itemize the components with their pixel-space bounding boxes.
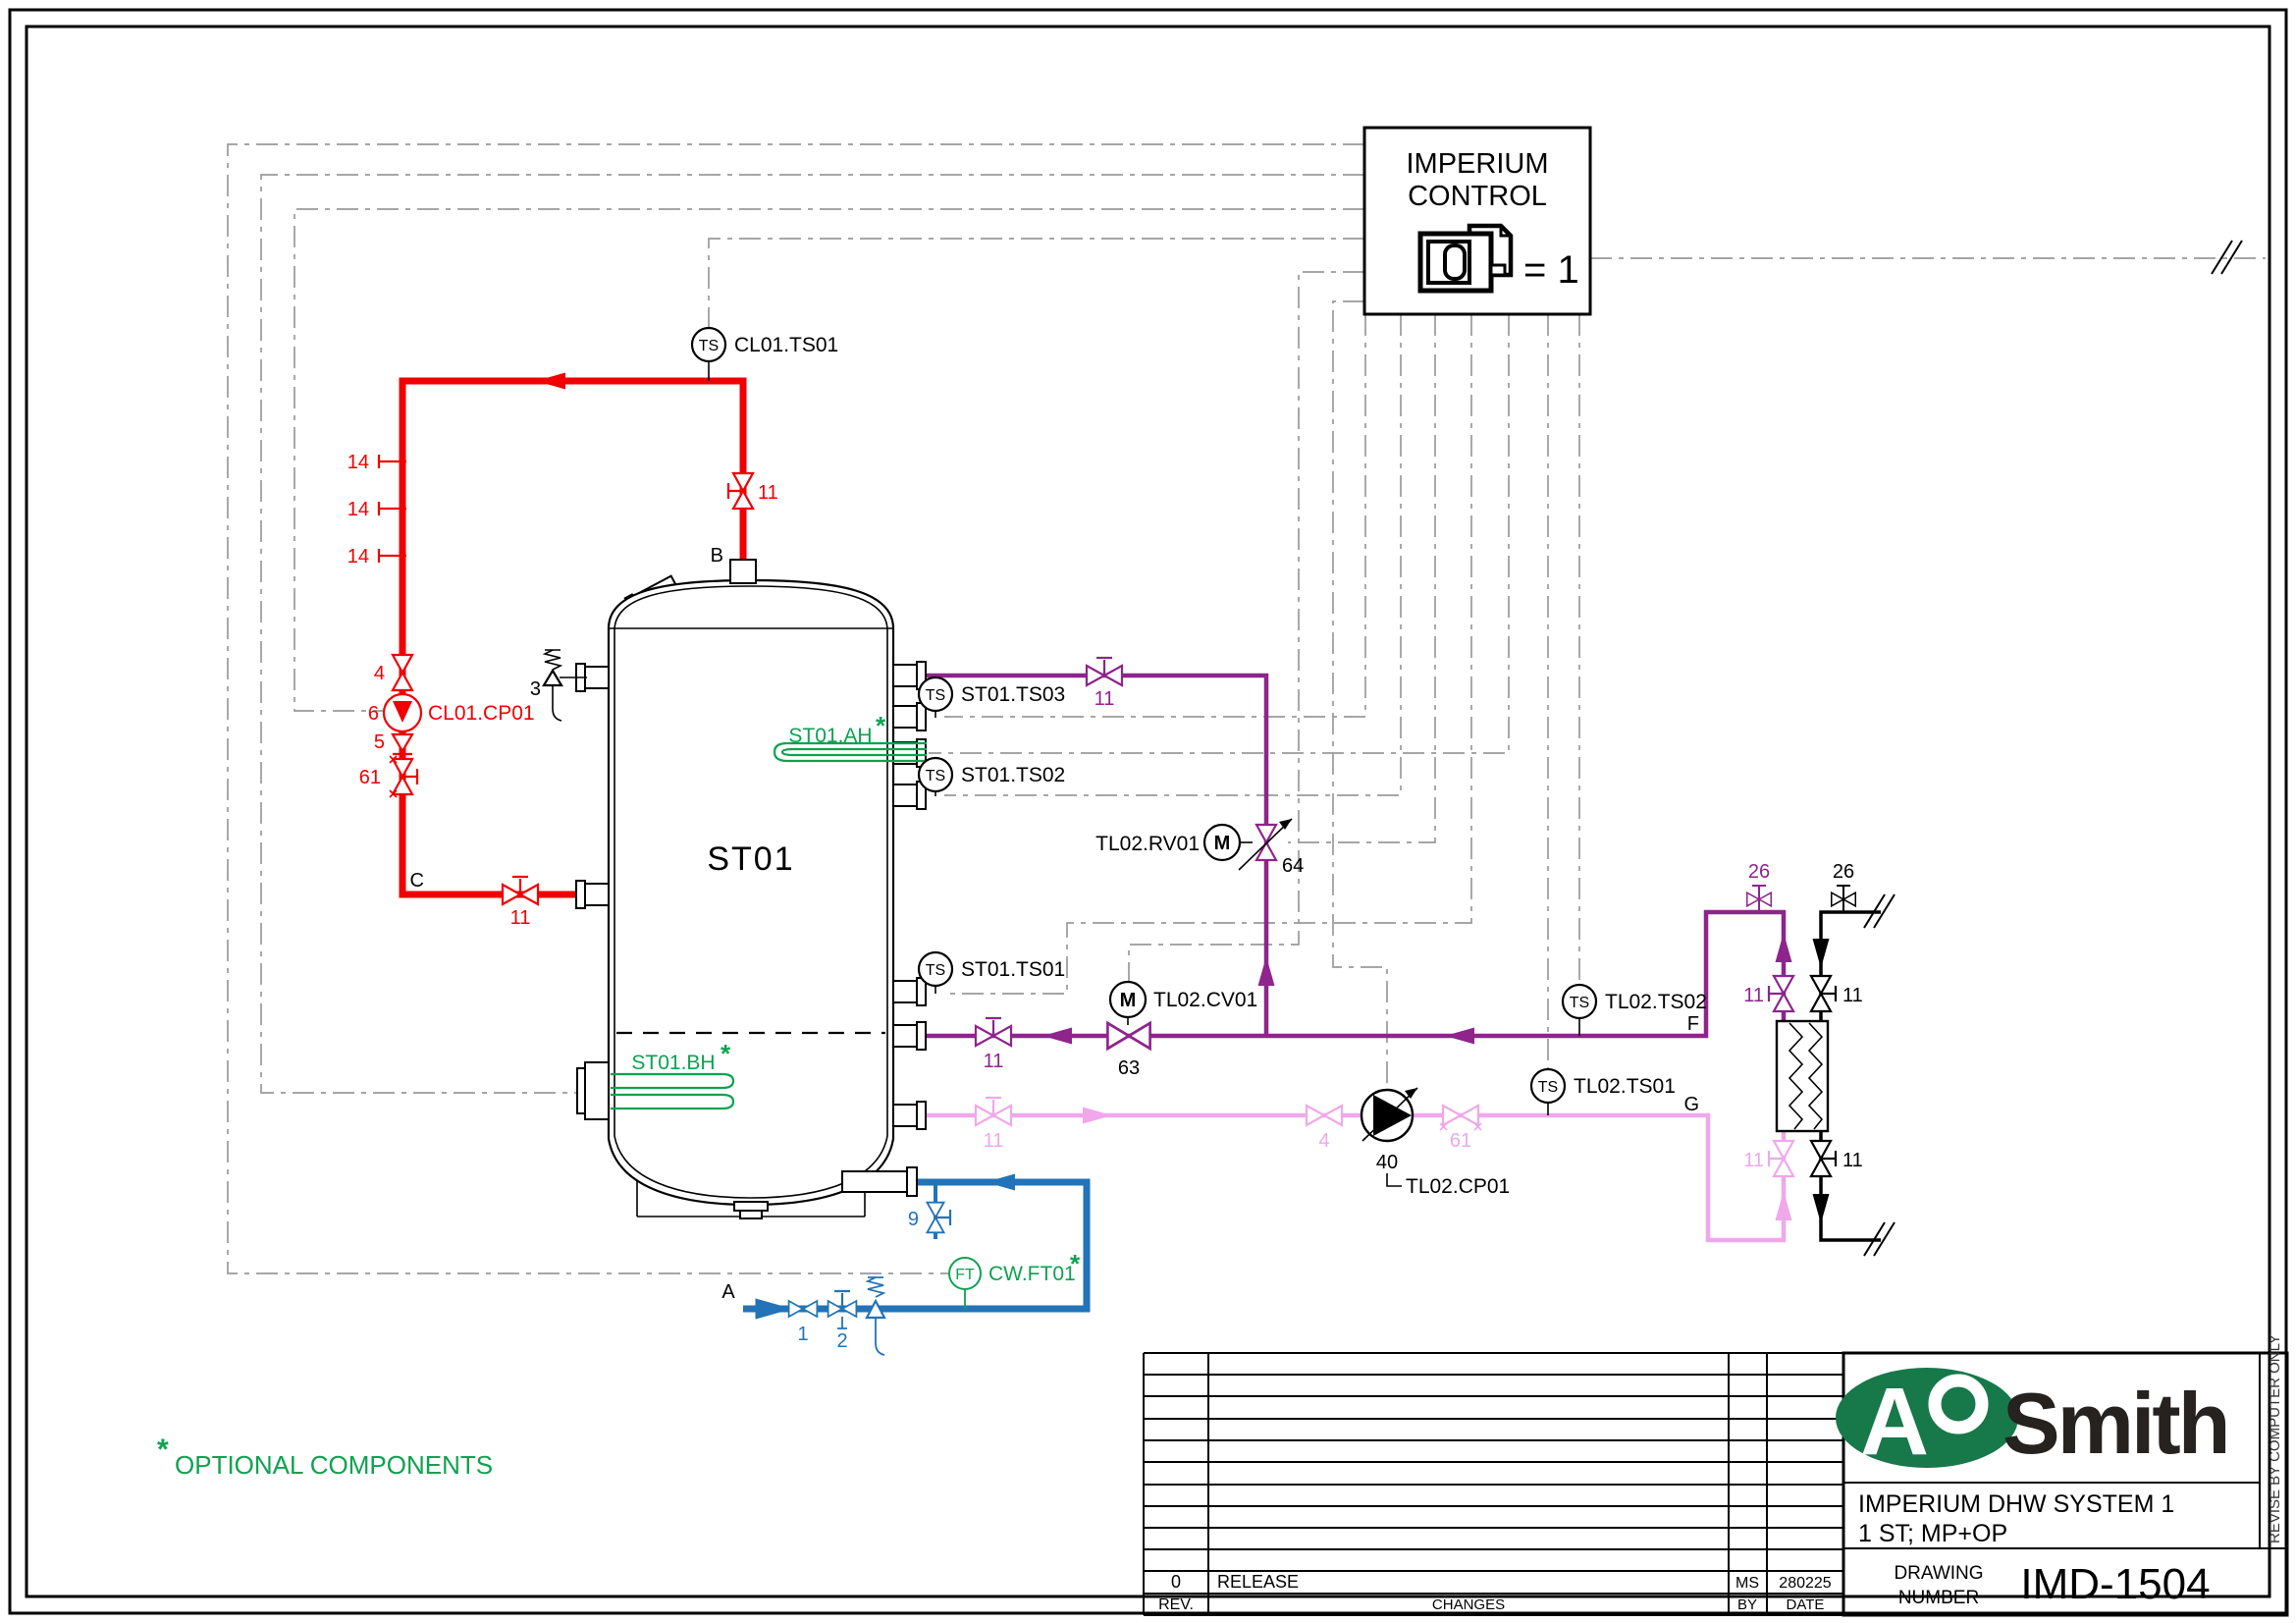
revision-header-by: BY [1737, 1596, 1757, 1613]
valve-11-purple-hx: 11 [1743, 976, 1793, 1011]
inner-border [27, 27, 2269, 1596]
flow-arrow-down [1813, 1194, 1830, 1223]
valve-label: 64 [1282, 855, 1304, 877]
drawing-number-value: IMD-1504 [2020, 1560, 2210, 1608]
check-valve-icon [393, 734, 412, 751]
revision-table: 0 RELEASE MS 280225 REV. CHANGES BY DATE [1144, 1353, 1843, 1615]
revision-header-rev: REV. [1158, 1596, 1194, 1613]
valve-label: 11 [758, 482, 778, 504]
actuator-tl02-cv01: M TL02.CV01 [1110, 982, 1257, 1017]
relief-valve-blue [867, 1277, 884, 1355]
tank-nozzle [893, 978, 926, 1005]
sensor-cl01-ts01: TS CL01.TS01 [692, 328, 838, 381]
tank-bottom-nozzle [740, 1211, 762, 1218]
pump-label: TL02.CP01 [1406, 1175, 1510, 1198]
flow-arrow-right [1083, 1108, 1112, 1124]
valve-label: 61 [1450, 1130, 1471, 1152]
drawing-number-label: DRAWING [1894, 1563, 1983, 1584]
valve-61-pink: 61 [1440, 1106, 1481, 1152]
sensor-label: CW.FT01 [988, 1263, 1076, 1285]
connection-c: C [410, 870, 424, 892]
sensor-cw-ft01: FT CW.FT01 * [949, 1249, 1081, 1309]
sensor-tl02-ts02: TS TL02.TS02 [1563, 985, 1707, 1036]
system-title-line1: IMPERIUM DHW SYSTEM 1 [1858, 1490, 2174, 1518]
tick-label: 14 [347, 499, 369, 520]
control-box-title: IMPERIUM [1407, 148, 1549, 180]
valve-label: 11 [1743, 1150, 1764, 1171]
actuator-tl02-rv01: M TL02.RV01 [1095, 825, 1253, 860]
sensor-label: ST01.TS02 [961, 764, 1065, 786]
valve-4-pink: 4 [1307, 1106, 1342, 1152]
system-title-line2: 1 ST; MP+OP [1858, 1520, 2007, 1547]
valve-26-purple-vent: 26 [1747, 861, 1771, 912]
pump-tl02-cp01: 40 TL02.CP01 [1362, 1088, 1510, 1198]
actuator-tag: M [1214, 833, 1231, 854]
connection-f: F [1687, 1013, 1699, 1035]
sensor-tag: TS [1538, 1079, 1558, 1096]
pid-drawing-page: ST01 ST01.AH * ST01.BH * 14 14 14 11 4 [0, 0, 2296, 1623]
tank-cold-inlet-flange [907, 1167, 917, 1196]
element-bh-optional-marker: * [721, 1039, 731, 1068]
piping-diagram: ST01 ST01.AH * ST01.BH * 14 14 14 11 4 [0, 0, 2296, 1623]
sensor-label: TL02.TS01 [1574, 1075, 1676, 1098]
flow-arrow-up [1258, 956, 1275, 986]
valve-11-black-hx-top: 11 [1811, 976, 1863, 1011]
element-bh-flange [577, 1068, 585, 1113]
valve-5-red-check: 5 [374, 731, 412, 754]
tank-cold-inlet-stub [842, 1171, 909, 1192]
pipe-pink-return [918, 1115, 1784, 1240]
side-note-vertical: REVISE BY COMPUTER ONLY [2267, 1334, 2283, 1543]
pump-number: 40 [1376, 1152, 1398, 1173]
heat-exchanger [1777, 1021, 1828, 1131]
valve-11-red-top: 11 [728, 473, 778, 509]
wiring-break-icon [2212, 241, 2242, 274]
sensor-label: TL02.TS02 [1605, 991, 1707, 1013]
control-box-equation: = 1 [1523, 248, 1579, 292]
valve-label: 4 [1318, 1130, 1329, 1152]
valve-label: 4 [374, 663, 385, 684]
pump-label: CL01.CP01 [428, 702, 535, 725]
flow-arrow-left [536, 373, 565, 390]
sensor-label: ST01.TS01 [961, 958, 1065, 981]
imperium-control-box: IMPERIUM CONTROL = 1 [1364, 128, 1590, 314]
sensor-tag: TS [926, 768, 945, 784]
sensor-st01-ts02: TS ST01.TS02 [919, 758, 1065, 796]
valve-2-blue: 2 [828, 1291, 857, 1352]
flow-arrow-left [1445, 1028, 1474, 1045]
logo-smith-text: Smith [2002, 1375, 2227, 1472]
optional-text: OPTIONAL COMPONENTS [175, 1450, 493, 1480]
tank-bottom-nozzle [734, 1202, 768, 1211]
flow-arrow-up [1776, 933, 1792, 962]
valve-11-purple-top: 11 [1087, 658, 1122, 710]
element-ah-label: ST01.AH [788, 725, 872, 747]
spring-icon [868, 1277, 883, 1297]
tank-nozzle [576, 881, 609, 908]
valve-label: 63 [1118, 1057, 1140, 1079]
flow-arrow-left [986, 1174, 1015, 1191]
tick-label: 14 [347, 452, 369, 473]
valve-label: 3 [530, 678, 541, 700]
valve-11-pink-main: 11 [976, 1098, 1011, 1152]
pipe-primary-return [1821, 1131, 1881, 1240]
logo-letter-a: A [1860, 1368, 1929, 1475]
valve-label: 11 [1095, 688, 1115, 710]
spring-icon [545, 650, 561, 670]
element-bh-label: ST01.BH [631, 1052, 715, 1074]
revision-change: RELEASE [1217, 1572, 1299, 1592]
tank-nozzle [893, 782, 926, 809]
valve-label: 61 [359, 767, 381, 788]
tank-nozzle-b [730, 560, 756, 583]
valve-label: 11 [510, 907, 531, 929]
valve-label: 5 [374, 731, 385, 753]
tank-nozzle [893, 703, 926, 730]
sensor-label: ST01.TS03 [961, 683, 1065, 706]
valve-61-red: 61 [359, 756, 417, 797]
pump-cl01-cp01: 6 CL01.CP01 [368, 694, 535, 731]
storage-tank: ST01 [576, 560, 926, 1218]
sensor-tag: TS [926, 962, 945, 979]
sensor-st01-ts01: TS ST01.TS01 [919, 952, 1065, 994]
valve-label: 26 [1833, 861, 1854, 883]
sensor-st01-ts03: TS ST01.TS03 [919, 677, 1065, 718]
actuator-label: TL02.CV01 [1153, 989, 1257, 1011]
valve-label: 11 [984, 1130, 1004, 1152]
tank-label: ST01 [707, 840, 794, 878]
sensor-tag: TS [1570, 995, 1589, 1011]
valve-63-cv01: 63 [1107, 1017, 1149, 1079]
flow-arrow-left [1042, 1028, 1072, 1045]
ao-smith-logo: A Smith [1836, 1368, 2227, 1475]
element-bh-flange [585, 1062, 609, 1119]
valve-label: 26 [1748, 861, 1770, 883]
valve-label: 1 [797, 1324, 808, 1345]
optional-marker: * [157, 1434, 169, 1466]
valve-label: 11 [1743, 985, 1764, 1006]
revision-by: MS [1735, 1575, 1759, 1592]
control-box-title: CONTROL [1408, 181, 1547, 212]
valve-label: 2 [836, 1330, 847, 1352]
sensor-tl02-ts01: TS TL02.TS01 [1531, 1069, 1676, 1115]
tank-nozzle [893, 1022, 926, 1050]
title-block: A Smith IMPERIUM DHW SYSTEM 1 1 ST; MP+O… [1836, 1334, 2287, 1615]
flow-arrow-up [1776, 1191, 1792, 1220]
valve-26-black-vent: 26 [1832, 861, 1855, 912]
revision-header-date: DATE [1787, 1596, 1825, 1613]
valve-label: 11 [1842, 985, 1863, 1006]
valve-11-red-c: 11 [503, 877, 538, 929]
valve-label: 11 [984, 1051, 1004, 1072]
optional-components-note: * OPTIONAL COMPONENTS [157, 1434, 493, 1480]
revision-rev: 0 [1171, 1572, 1181, 1592]
valve-11-purple-main: 11 [976, 1018, 1011, 1072]
sensor-tag: FT [955, 1267, 975, 1283]
tank-shell [609, 580, 893, 1205]
relief-valve-icon [544, 671, 561, 685]
pump-number: 6 [368, 703, 379, 725]
valve-label: 9 [908, 1209, 919, 1230]
connection-g: G [1683, 1094, 1699, 1115]
connection-a: A [721, 1281, 735, 1303]
sensor-tag: TS [926, 687, 945, 704]
tick-label: 14 [347, 546, 369, 568]
valve-9-blue-drain: 9 [908, 1203, 950, 1233]
sensor-label: CL01.TS01 [734, 334, 838, 356]
tank-nozzle [893, 1102, 926, 1129]
valves: 14 14 14 11 4 6 CL01.CP01 5 61 [347, 452, 1863, 1355]
drawing-number-label: NUMBER [1898, 1588, 1979, 1608]
valve-11-black-hx-bottom: 11 [1811, 1141, 1863, 1176]
revision-header-changes: CHANGES [1432, 1596, 1505, 1613]
valve-label: 11 [1842, 1150, 1863, 1171]
flow-arrow-right [756, 1298, 793, 1319]
valve-4-red: 4 [374, 655, 412, 690]
element-ah-optional-marker: * [876, 711, 886, 740]
actuator-tag: M [1120, 990, 1137, 1011]
connection-b: B [711, 545, 723, 567]
flow-arrow-down [1813, 939, 1830, 968]
revision-date: 280225 [1779, 1575, 1831, 1592]
valve-64-rv01: 64 [1239, 819, 1304, 877]
sensor-optional-marker: * [1070, 1249, 1081, 1278]
valve-11-pink-hx: 11 [1743, 1141, 1793, 1176]
actuator-label: TL02.RV01 [1095, 833, 1200, 855]
tick-14-group: 14 14 14 [347, 452, 406, 568]
sensor-tag: TS [699, 338, 719, 354]
